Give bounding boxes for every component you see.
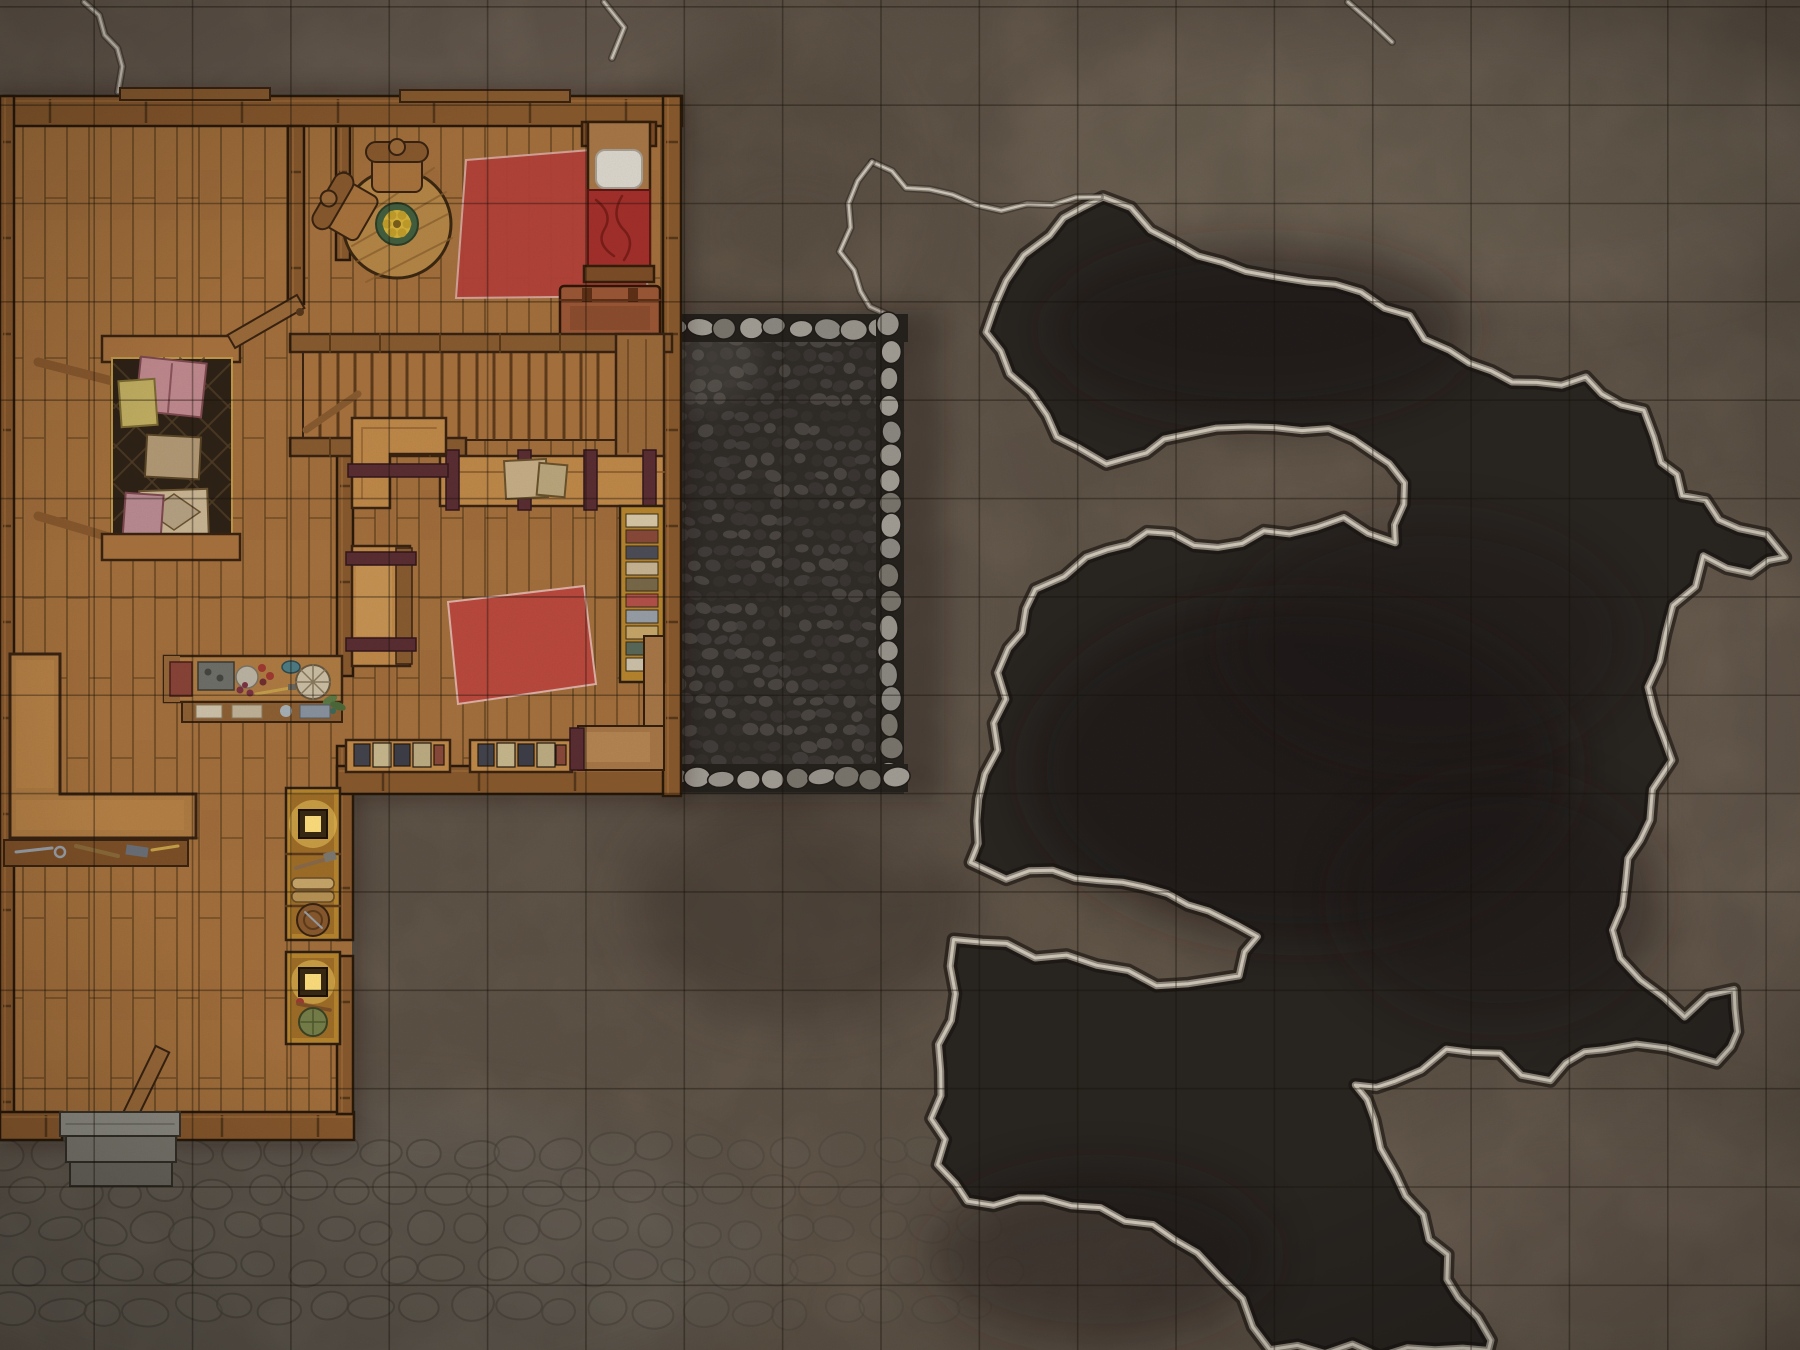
battle-map[interactable] xyxy=(0,0,1800,1350)
vignette xyxy=(0,0,1800,1350)
map-canvas xyxy=(0,0,1800,1350)
